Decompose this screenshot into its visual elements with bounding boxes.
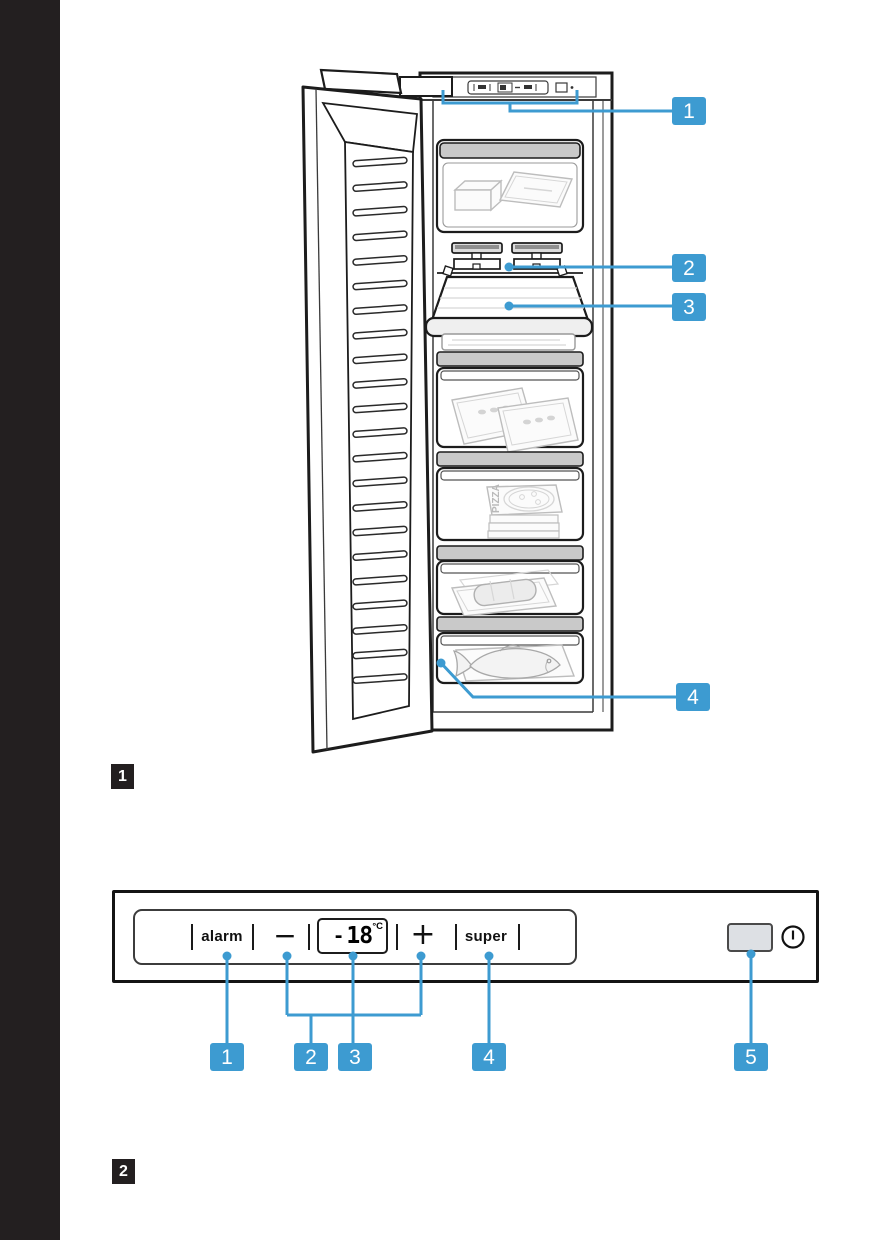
- door-inner-trim: [323, 103, 417, 152]
- separator: [308, 924, 310, 950]
- temperature-sign: -: [333, 925, 344, 947]
- plus-button: +: [409, 920, 437, 950]
- ice-cube-trays: [452, 243, 562, 269]
- temperature-unit: °C: [372, 921, 383, 932]
- frozen-box: [455, 181, 501, 210]
- alarm-button: alarm: [192, 928, 252, 945]
- flap-compartment: [426, 266, 592, 350]
- callout-temp-display: 3: [338, 1043, 372, 1071]
- door-hinge: [400, 77, 452, 96]
- page-margin-band: [0, 0, 60, 1240]
- freezer-cabinet: PIZZA: [420, 73, 612, 730]
- separator: [252, 924, 254, 950]
- door-top-cap: [321, 70, 401, 93]
- callout-alarm-button: 1: [210, 1043, 244, 1071]
- door-inner-panel: [345, 142, 413, 719]
- temperature-display: - 18 °C: [317, 918, 388, 954]
- callout-flap-compartment: 3: [672, 293, 706, 321]
- minus-button: −: [271, 922, 299, 950]
- pizza-drawer: PIZZA: [437, 452, 583, 540]
- power-button: [727, 923, 773, 952]
- temperature-value: 18: [346, 923, 372, 949]
- appliance-control-strip: [433, 77, 596, 97]
- super-button: super: [456, 928, 516, 945]
- figure-2-label: 2: [112, 1159, 135, 1184]
- callout-frozen-food-drawer: 4: [676, 683, 710, 711]
- callout-temp-buttons: 2: [294, 1043, 328, 1071]
- callout-ice-trays: 2: [672, 254, 706, 282]
- fish: [454, 645, 560, 678]
- top-drawer: [437, 140, 583, 232]
- callout-power-button: 5: [734, 1043, 768, 1071]
- control-panel-diagram: alarm − - 18 °C + super: [112, 890, 819, 983]
- separator: [518, 924, 520, 950]
- frozen-bag-flat: [500, 172, 572, 207]
- separator: [396, 924, 398, 950]
- fish-drawer: [437, 617, 583, 683]
- door-louvres: [353, 157, 407, 683]
- power-icon: [780, 924, 806, 950]
- freezer-door: [303, 70, 452, 752]
- mini-power-button: [556, 83, 567, 92]
- callout-super-button: 4: [472, 1043, 506, 1071]
- meat-drawer: [437, 546, 583, 616]
- frozen-bags-drawer: [437, 352, 583, 452]
- pizza-box-label: PIZZA: [491, 484, 502, 513]
- figure1-leader-lines: [437, 90, 677, 697]
- callout-control-panel: 1: [672, 97, 706, 125]
- figure-1-label: 1: [111, 764, 134, 789]
